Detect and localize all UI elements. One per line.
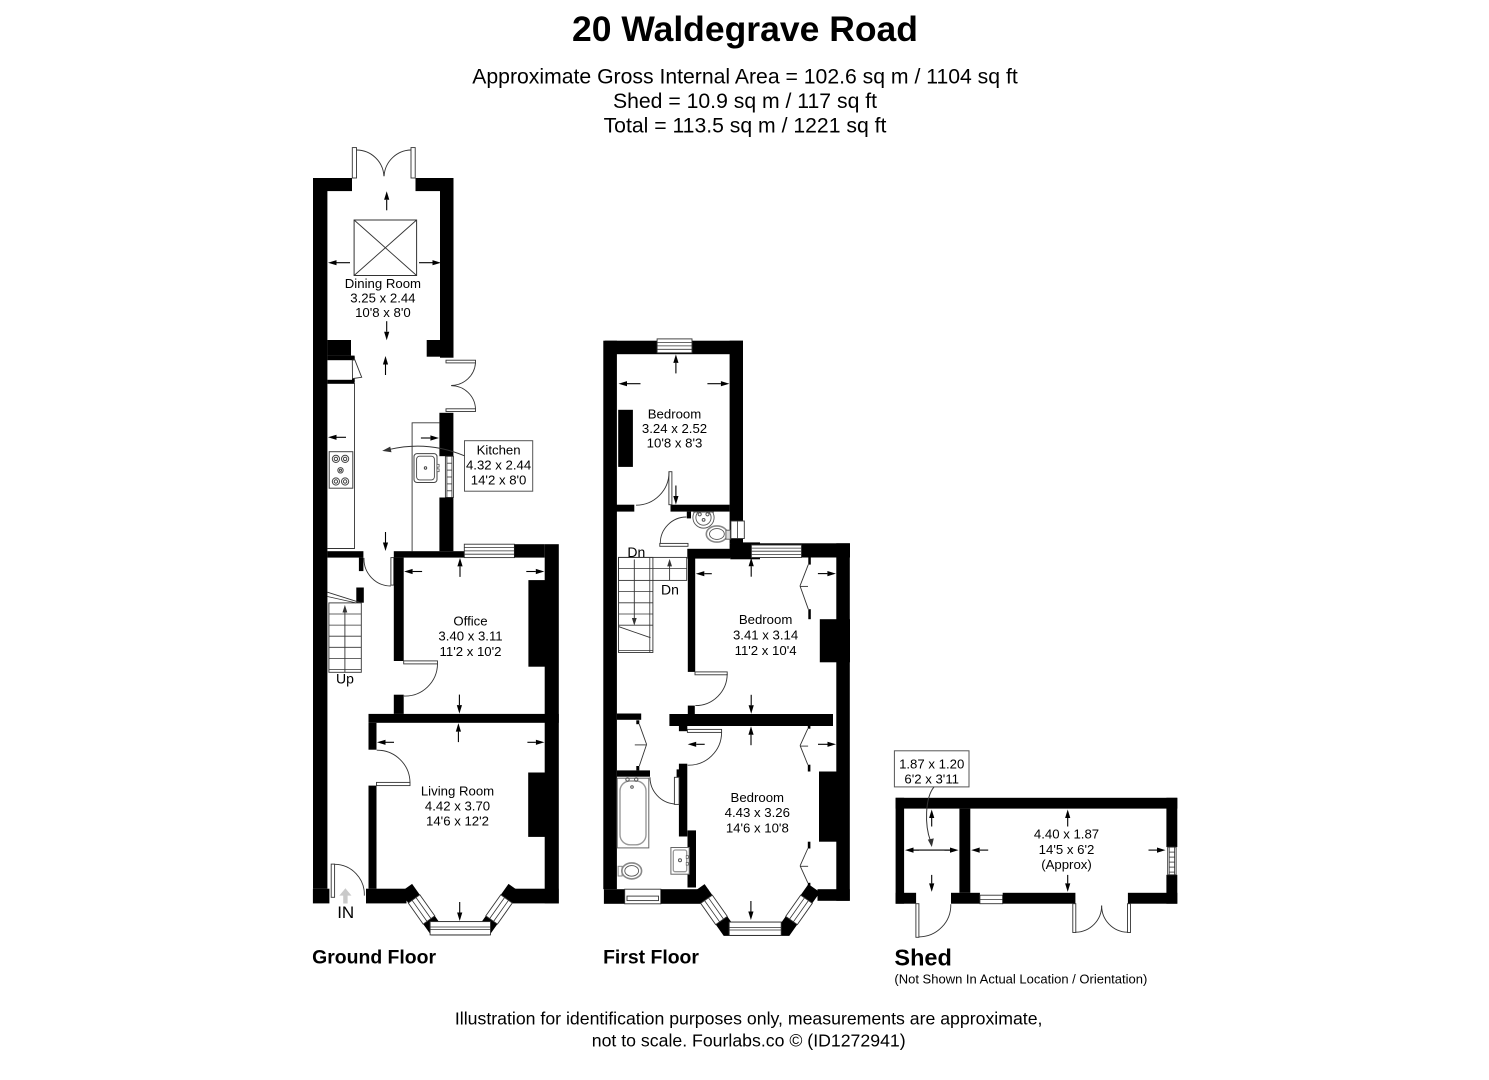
svg-text:10'8 x 8'0: 10'8 x 8'0 [355, 305, 411, 320]
svg-text:10'8 x 8'3: 10'8 x 8'3 [647, 436, 703, 451]
svg-text:11'2 x 10'2: 11'2 x 10'2 [440, 644, 502, 659]
svg-text:(Approx): (Approx) [1041, 857, 1092, 872]
svg-text:Approximate Gross Internal Are: Approximate Gross Internal Area = 102.6 … [472, 66, 1018, 89]
svg-text:IN: IN [337, 903, 354, 922]
svg-text:20 Waldegrave Road: 20 Waldegrave Road [572, 9, 918, 49]
svg-text:Dining Room: Dining Room [345, 276, 421, 291]
svg-text:Shed = 10.9 sq m / 117 sq ft: Shed = 10.9 sq m / 117 sq ft [613, 90, 877, 113]
svg-text:4.32 x 2.44: 4.32 x 2.44 [466, 457, 531, 472]
svg-text:3.24 x 2.52: 3.24 x 2.52 [642, 421, 707, 436]
svg-text:Bedroom: Bedroom [739, 612, 793, 627]
svg-text:1.87 x 1.20: 1.87 x 1.20 [899, 756, 964, 771]
svg-text:Up: Up [336, 671, 354, 687]
svg-text:Total = 113.5 sq m / 1221 sq f: Total = 113.5 sq m / 1221 sq ft [604, 115, 887, 138]
svg-text:4.43 x 3.26: 4.43 x 3.26 [725, 805, 790, 820]
svg-text:4.42 x 3.70: 4.42 x 3.70 [425, 798, 490, 813]
svg-text:3.40 x 3.11: 3.40 x 3.11 [438, 629, 502, 644]
svg-text:Ground Floor: Ground Floor [312, 947, 436, 969]
svg-text:Bedroom: Bedroom [648, 406, 702, 421]
svg-text:First Floor: First Floor [603, 947, 699, 969]
svg-text:14'6 x 12'2: 14'6 x 12'2 [426, 813, 489, 828]
svg-text:Bedroom: Bedroom [731, 790, 785, 805]
svg-text:6'2 x 3'11: 6'2 x 3'11 [904, 771, 959, 786]
svg-text:3.25 x 2.44: 3.25 x 2.44 [350, 290, 415, 305]
svg-text:14'2 x 8'0: 14'2 x 8'0 [471, 472, 527, 487]
svg-text:Kitchen: Kitchen [477, 442, 521, 457]
svg-text:not to scale. Fourlabs.co © (I: not to scale. Fourlabs.co © (ID1272941) [592, 1031, 906, 1051]
svg-text:3.41 x 3.14: 3.41 x 3.14 [733, 628, 798, 643]
svg-text:Office: Office [453, 614, 487, 629]
svg-text:(Not Shown In Actual Location: (Not Shown In Actual Location / Orientat… [894, 971, 1147, 986]
svg-text:4.40 x 1.87: 4.40 x 1.87 [1034, 827, 1099, 842]
svg-text:Living Room: Living Room [421, 784, 494, 799]
svg-text:11'2 x 10'4: 11'2 x 10'4 [735, 643, 797, 658]
svg-text:Dn: Dn [627, 544, 645, 560]
svg-text:Illustration for identificatio: Illustration for identification purposes… [455, 1009, 1043, 1029]
svg-text:14'5 x 6'2: 14'5 x 6'2 [1039, 842, 1095, 857]
svg-text:Dn: Dn [661, 582, 679, 598]
svg-text:Shed: Shed [894, 945, 951, 971]
svg-text:14'6 x 10'8: 14'6 x 10'8 [726, 820, 789, 835]
